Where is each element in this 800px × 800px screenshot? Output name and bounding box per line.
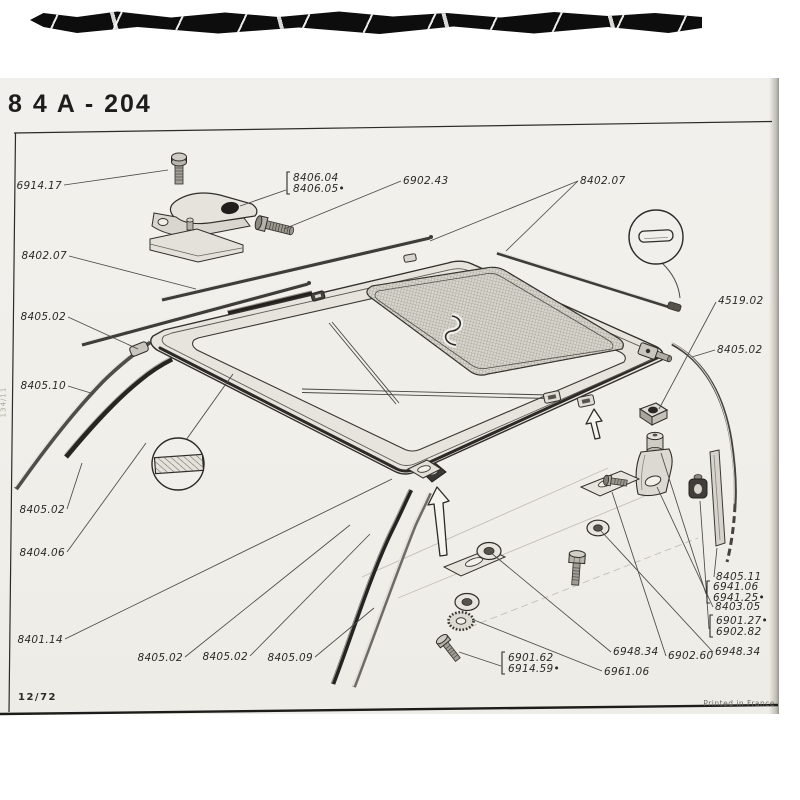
leader-line xyxy=(700,501,709,629)
right-cable xyxy=(671,343,735,562)
side-reference-vertical: 134/11 xyxy=(0,387,7,418)
leader-line xyxy=(692,350,715,357)
left-gutter-rails xyxy=(15,340,172,489)
hex-bolt xyxy=(435,633,463,664)
leader-line xyxy=(65,479,392,639)
part-label: 8405.11 xyxy=(716,571,762,583)
plate-date: 12/72 xyxy=(18,692,57,703)
leader-line xyxy=(69,256,196,289)
part-label: 8404.06 xyxy=(19,547,65,559)
washer xyxy=(587,520,609,536)
leader-line xyxy=(67,463,82,509)
leader-line xyxy=(459,652,501,666)
part-label: 6902.43 xyxy=(403,175,449,187)
part-label: 6961.06 xyxy=(604,666,650,678)
part-label: 8405.02 xyxy=(20,311,66,323)
part-label: 8405.02 xyxy=(19,504,65,516)
washer xyxy=(477,543,501,560)
catalog-page: 6914.178406.048406.05•6902.438402.078402… xyxy=(0,0,800,800)
up-arrow xyxy=(428,487,449,556)
detail-circle-seal xyxy=(152,374,233,490)
leader-line xyxy=(612,492,666,656)
printed-in-france-note: Printed in France xyxy=(703,699,775,708)
roller-bracket xyxy=(636,432,672,495)
part-label: 6914.17 xyxy=(16,180,62,192)
exploded-diagram: 6914.178406.048406.05•6902.438402.078402… xyxy=(0,0,800,800)
up-arrow xyxy=(586,409,602,439)
part-label: 8401.14 xyxy=(17,634,63,646)
part-label: 8406.05• xyxy=(293,183,345,195)
part-label: 6914.59• xyxy=(508,663,560,675)
page-title: 8 4 A - 204 xyxy=(8,90,152,119)
label-bracket xyxy=(502,652,505,674)
part-label: 6948.34 xyxy=(715,646,761,658)
part-label: 6948.34 xyxy=(613,646,659,658)
leader-line xyxy=(601,531,713,652)
leader-line xyxy=(506,181,578,251)
leader-line xyxy=(64,170,168,185)
washer xyxy=(455,594,479,611)
part-label: 8405.09 xyxy=(267,652,313,664)
part-label: 6941.25• xyxy=(713,592,765,604)
part-label: 8405.10 xyxy=(20,380,66,392)
bolt xyxy=(172,153,187,184)
part-label: 8402.07 xyxy=(21,250,67,262)
part-label: 8402.07 xyxy=(580,175,626,187)
roof-assembly xyxy=(151,254,674,478)
part-label: 8405.02 xyxy=(202,651,248,663)
leader-line xyxy=(67,443,146,552)
frame-clip xyxy=(403,254,416,263)
blade-strip xyxy=(710,450,725,546)
detail-circle-profile xyxy=(629,210,683,298)
part-label: 8405.02 xyxy=(137,652,183,664)
leader-line xyxy=(185,525,350,657)
toothed-washer xyxy=(449,612,474,630)
label-bracket xyxy=(710,615,713,637)
leader-line xyxy=(430,181,578,241)
part-label: 6902.82 xyxy=(716,626,762,638)
part-label: 6902.60 xyxy=(668,650,714,662)
spring-clip xyxy=(689,475,707,499)
hex-bolt xyxy=(567,550,585,585)
leader-line xyxy=(661,453,706,594)
leader-line xyxy=(240,190,286,206)
latch-assembly xyxy=(150,153,295,262)
bottom-rails xyxy=(332,462,446,687)
part-label: 8405.02 xyxy=(717,344,763,356)
part-label: 4519.02 xyxy=(718,295,764,307)
leader-line xyxy=(490,552,611,652)
leader-line xyxy=(68,386,94,394)
square-nut xyxy=(640,403,667,425)
label-bracket xyxy=(287,172,290,194)
